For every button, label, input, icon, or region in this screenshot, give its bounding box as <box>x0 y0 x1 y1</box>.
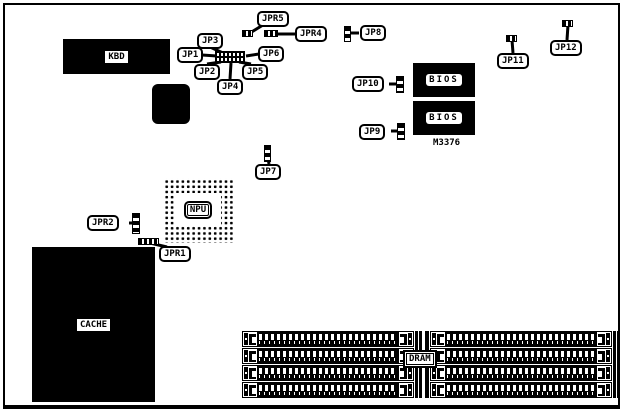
socket-latch <box>400 334 407 345</box>
jumper-label-jpr1: JPR1 <box>159 246 191 262</box>
jp7-jumper-icon <box>264 145 271 162</box>
dram-bank-right <box>430 331 612 398</box>
socket-pins <box>257 332 399 346</box>
bios-top-label: BIOS <box>426 74 462 86</box>
jumper-label-jpr2: JPR2 <box>87 215 119 231</box>
jp10-jumper-icon <box>396 76 404 93</box>
socket-post <box>606 367 610 379</box>
jumper-label-jp11: JP11 <box>497 53 529 69</box>
npu-core: NPU <box>175 193 221 226</box>
socket-post <box>408 367 412 379</box>
simm-socket <box>430 348 612 364</box>
simm-socket <box>430 331 612 347</box>
simm-socket <box>430 365 612 381</box>
socket-post <box>408 333 412 345</box>
bios-bottom-label: BIOS <box>426 112 462 124</box>
socket-pins <box>257 383 399 397</box>
square-chip <box>152 84 190 124</box>
simm-socket <box>242 382 414 398</box>
jumper-label-jp3: JP3 <box>197 33 223 49</box>
socket-latch <box>437 368 444 379</box>
jumper-label-jp6: JP6 <box>258 46 284 62</box>
socket-pins <box>445 366 597 380</box>
jpr2-jumper-icon <box>132 213 140 234</box>
npu-socket: NPU <box>163 178 233 243</box>
jp8-jumper-icon <box>344 26 351 42</box>
simm-socket <box>242 348 414 364</box>
socket-post <box>432 367 436 379</box>
socket-latch <box>400 368 407 379</box>
socket-latch <box>437 385 444 396</box>
motherboard-diagram: KBD JP1 JP2 JP3 JP4 JP5 JP6 JP7 JP8 JP9 … <box>0 0 627 416</box>
socket-latch <box>400 385 407 396</box>
socket-post <box>244 384 248 396</box>
bios-chip-top: BIOS <box>413 63 475 97</box>
jp9-jumper-icon <box>397 123 405 140</box>
socket-latch <box>598 334 605 345</box>
jpr4-jumper-icon <box>264 30 278 37</box>
socket-pins <box>445 332 597 346</box>
cache-chip: CACHE <box>32 247 155 402</box>
jumper-label-jp8: JP8 <box>360 25 386 41</box>
npu-label-box: NPU <box>184 201 212 219</box>
socket-latch <box>249 334 256 345</box>
dram-bank-left <box>242 331 414 398</box>
jumper-label-jp12: JP12 <box>550 40 582 56</box>
jumper-label-jp7: JP7 <box>255 164 281 180</box>
npu-label: NPU <box>187 204 209 216</box>
socket-latch <box>598 351 605 362</box>
socket-latch <box>437 334 444 345</box>
socket-post <box>244 333 248 345</box>
jumper-label-jp1: JP1 <box>177 47 203 63</box>
jp11-jumper-icon <box>506 35 517 42</box>
jp12-jumper-icon <box>562 20 573 27</box>
jumper-label-jp2: JP2 <box>194 64 220 80</box>
jumper-label-jp5: JP5 <box>242 64 268 80</box>
socket-post <box>432 333 436 345</box>
jumper-label-jpr4: JPR4 <box>295 26 327 42</box>
simm-socket <box>242 365 414 381</box>
socket-latch <box>598 368 605 379</box>
socket-post <box>606 384 610 396</box>
bios-chip-bottom: BIOS <box>413 101 475 135</box>
dram-label: DRAM <box>406 353 434 365</box>
jumper-label-jp9: JP9 <box>359 124 385 140</box>
part-number-text: M3376 <box>433 138 460 148</box>
socket-latch <box>437 351 444 362</box>
socket-pins <box>445 349 597 363</box>
jumper-label-jp10: JP10 <box>352 76 384 92</box>
jumper-label-jpr5: JPR5 <box>257 11 289 27</box>
socket-pins <box>257 349 399 363</box>
pin-row <box>217 58 243 61</box>
bank-frame-bar <box>617 331 620 398</box>
socket-pins <box>445 383 597 397</box>
socket-latch <box>598 385 605 396</box>
kbd-chip: KBD <box>63 39 170 74</box>
dram-label-box: DRAM <box>403 350 437 368</box>
socket-post <box>606 333 610 345</box>
jpr1-jumper-icon <box>138 238 159 245</box>
simm-socket <box>242 331 414 347</box>
jpr5-jumper-icon <box>242 30 253 37</box>
pin-row <box>217 53 243 56</box>
socket-post <box>244 350 248 362</box>
socket-post <box>432 384 436 396</box>
jumper-label-jp4: JP4 <box>217 79 243 95</box>
kbd-label: KBD <box>105 51 127 63</box>
socket-post <box>606 350 610 362</box>
cache-label: CACHE <box>77 319 110 331</box>
simm-socket <box>430 382 612 398</box>
socket-latch <box>249 385 256 396</box>
socket-post <box>244 367 248 379</box>
socket-latch <box>249 368 256 379</box>
socket-pins <box>257 366 399 380</box>
socket-latch <box>249 351 256 362</box>
bank-frame-bar <box>613 331 616 398</box>
socket-post <box>408 384 412 396</box>
jumper-header-block <box>215 51 245 63</box>
